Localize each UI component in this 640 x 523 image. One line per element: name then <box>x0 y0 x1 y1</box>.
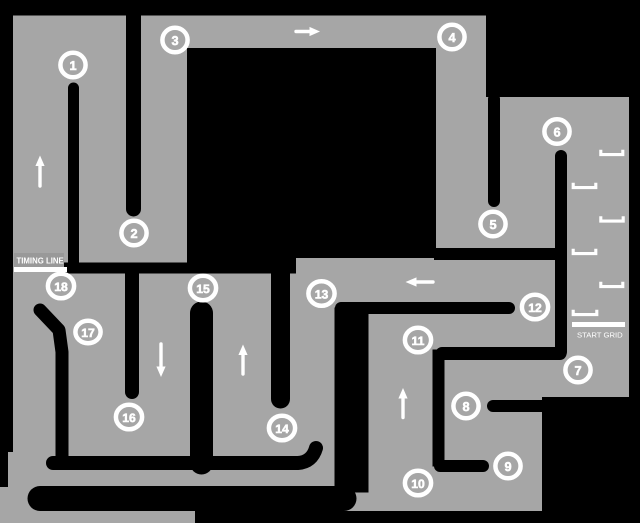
svg-text:TIMING LINE: TIMING LINE <box>17 257 64 266</box>
svg-text:15: 15 <box>196 282 210 296</box>
svg-text:9: 9 <box>504 459 511 474</box>
svg-text:16: 16 <box>122 411 136 425</box>
svg-text:1: 1 <box>69 58 76 73</box>
svg-text:START GRID: START GRID <box>577 331 623 340</box>
svg-text:13: 13 <box>315 288 329 302</box>
svg-text:2: 2 <box>130 226 137 241</box>
svg-text:11: 11 <box>412 334 425 348</box>
svg-text:18: 18 <box>54 280 68 294</box>
svg-text:8: 8 <box>462 399 469 414</box>
svg-text:12: 12 <box>528 301 542 315</box>
svg-text:7: 7 <box>574 363 581 378</box>
svg-text:4: 4 <box>448 30 456 45</box>
svg-text:17: 17 <box>81 326 95 340</box>
svg-text:5: 5 <box>489 217 496 232</box>
svg-text:6: 6 <box>553 125 560 140</box>
svg-text:14: 14 <box>275 422 289 436</box>
svg-text:3: 3 <box>171 33 178 48</box>
svg-text:10: 10 <box>411 477 425 491</box>
